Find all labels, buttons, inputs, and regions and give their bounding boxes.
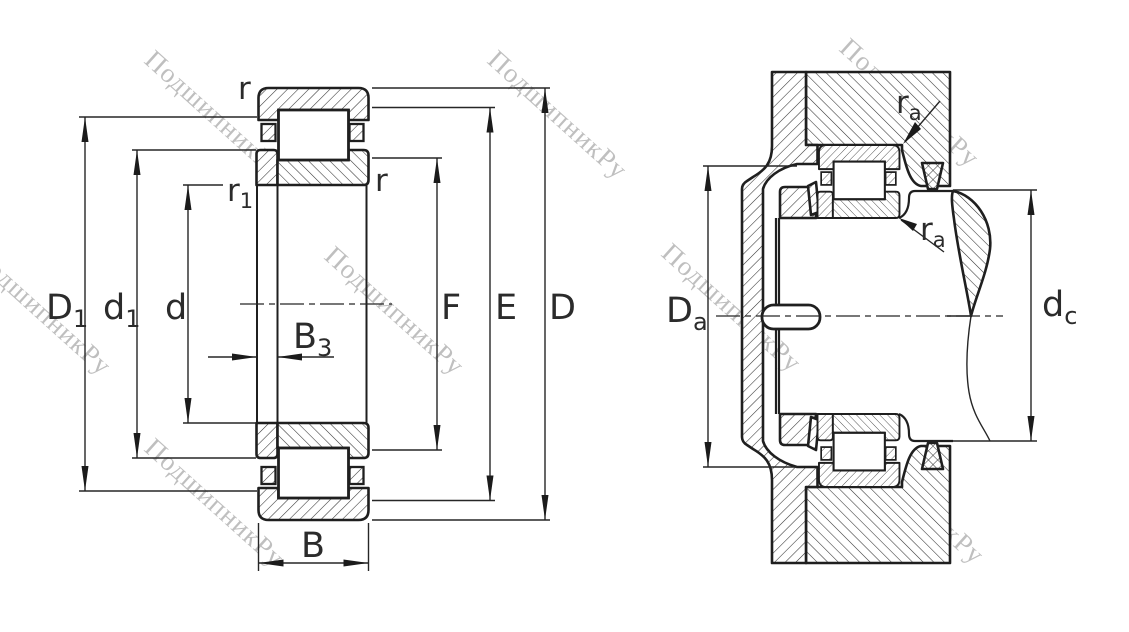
shaft-break-curve: [967, 316, 990, 441]
shaft-shoulder-lower: [899, 414, 953, 441]
dim-label-dc: dc: [1042, 285, 1077, 330]
dim-B3: B3: [208, 317, 334, 362]
dim-label-F: F: [441, 288, 461, 328]
bearing-drawing-svg: ПодшипникРу ПодшипникРу ПодшипникРу Подш…: [0, 0, 1129, 632]
dim-label-r-right: r: [375, 163, 388, 199]
shaft-break-section: [952, 191, 990, 316]
watermark-text: ПодшипникРу: [482, 44, 634, 185]
dim-label-E: E: [495, 288, 517, 328]
dim-label-B: B: [301, 526, 325, 566]
dim-label-d: d: [165, 288, 187, 328]
bearing-lower-half: [818, 414, 900, 487]
dim-label-d1: d1: [103, 288, 141, 333]
bearing-upper-half: [257, 88, 369, 185]
bearing-lower-half: [257, 423, 369, 520]
dim-label-r-top: r: [238, 71, 251, 107]
shaft-center-spigot: [762, 305, 820, 329]
dim-D1: D1: [46, 117, 257, 491]
dim-label-ra-lower: ra: [920, 212, 946, 252]
dim-label-B3: B3: [293, 317, 332, 362]
left-cross-section-view: D1 d1 d B3: [46, 71, 576, 571]
dim-label-D: D: [549, 288, 576, 328]
dim-ra-lower: ra: [899, 212, 946, 252]
dim-label-D1: D1: [46, 288, 88, 333]
technical-drawing-page: ПодшипникРу ПодшипникРу ПодшипникРу Подш…: [0, 0, 1129, 632]
dim-label-r1: r1: [227, 173, 253, 213]
bearing-upper-half: [818, 145, 900, 218]
